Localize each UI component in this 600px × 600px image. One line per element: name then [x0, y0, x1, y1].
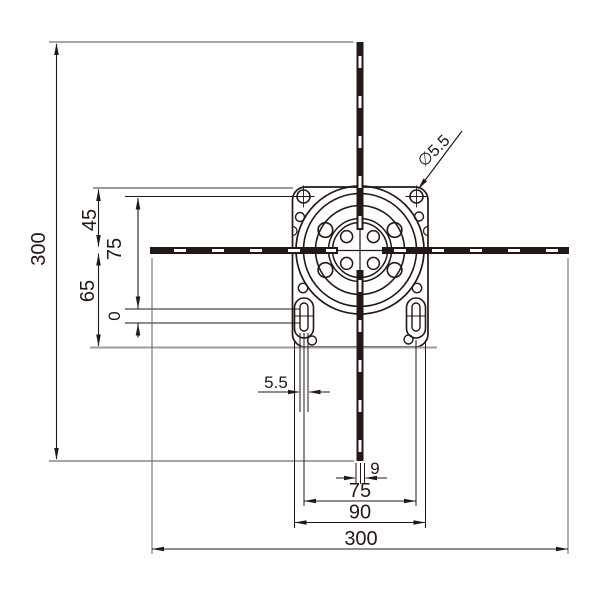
arrow-down	[136, 297, 141, 309]
dim-label: 75	[349, 480, 371, 502]
dim-label: 45	[79, 209, 101, 231]
dim-shaft-width: 9	[336, 459, 387, 480]
dim-hole-span-vertical: 75	[104, 198, 140, 309]
dim-center-to-bottom: 65	[77, 254, 101, 347]
dim-slot-ref: 0	[105, 311, 140, 337]
arrow-left	[309, 390, 321, 395]
arrow-right	[414, 520, 426, 525]
dim-width-overall: 300	[152, 528, 568, 551]
arrow-up	[136, 324, 141, 336]
dim-slot-outer-span: 90	[295, 502, 426, 525]
arrow-down	[96, 335, 101, 347]
arrow-up	[54, 43, 59, 55]
dim-top-to-center: 45	[79, 189, 101, 247]
dim-label: 75	[104, 238, 126, 260]
dim-label: 65	[77, 280, 99, 302]
arrow-left	[152, 547, 164, 552]
arrow-up	[96, 254, 101, 266]
dim-label: 90	[349, 502, 371, 524]
drawing-canvas: 300 45 65 75 0	[0, 0, 600, 600]
arrow-right	[404, 499, 416, 504]
dim-label: 300	[344, 528, 377, 550]
arrow-left	[304, 499, 316, 504]
arrow-left	[295, 520, 307, 525]
arrow-down	[54, 448, 59, 460]
dim-hole-dia-callout: ∅5.5	[414, 131, 462, 190]
dim-height-overall: 300	[28, 43, 59, 460]
dim-label: 0	[105, 311, 124, 320]
arrow-up	[136, 198, 141, 210]
dim-label: 9	[370, 459, 379, 478]
dim-label: 300	[28, 232, 50, 265]
dim-label: 5.5	[264, 373, 288, 392]
arrow-right	[556, 547, 568, 552]
arrow-up	[96, 189, 101, 201]
centerlines	[150, 42, 569, 461]
dim-slot-pitch: 75	[304, 480, 416, 503]
technical-drawing: 300 45 65 75 0	[0, 0, 600, 600]
arrow-down	[96, 235, 101, 247]
